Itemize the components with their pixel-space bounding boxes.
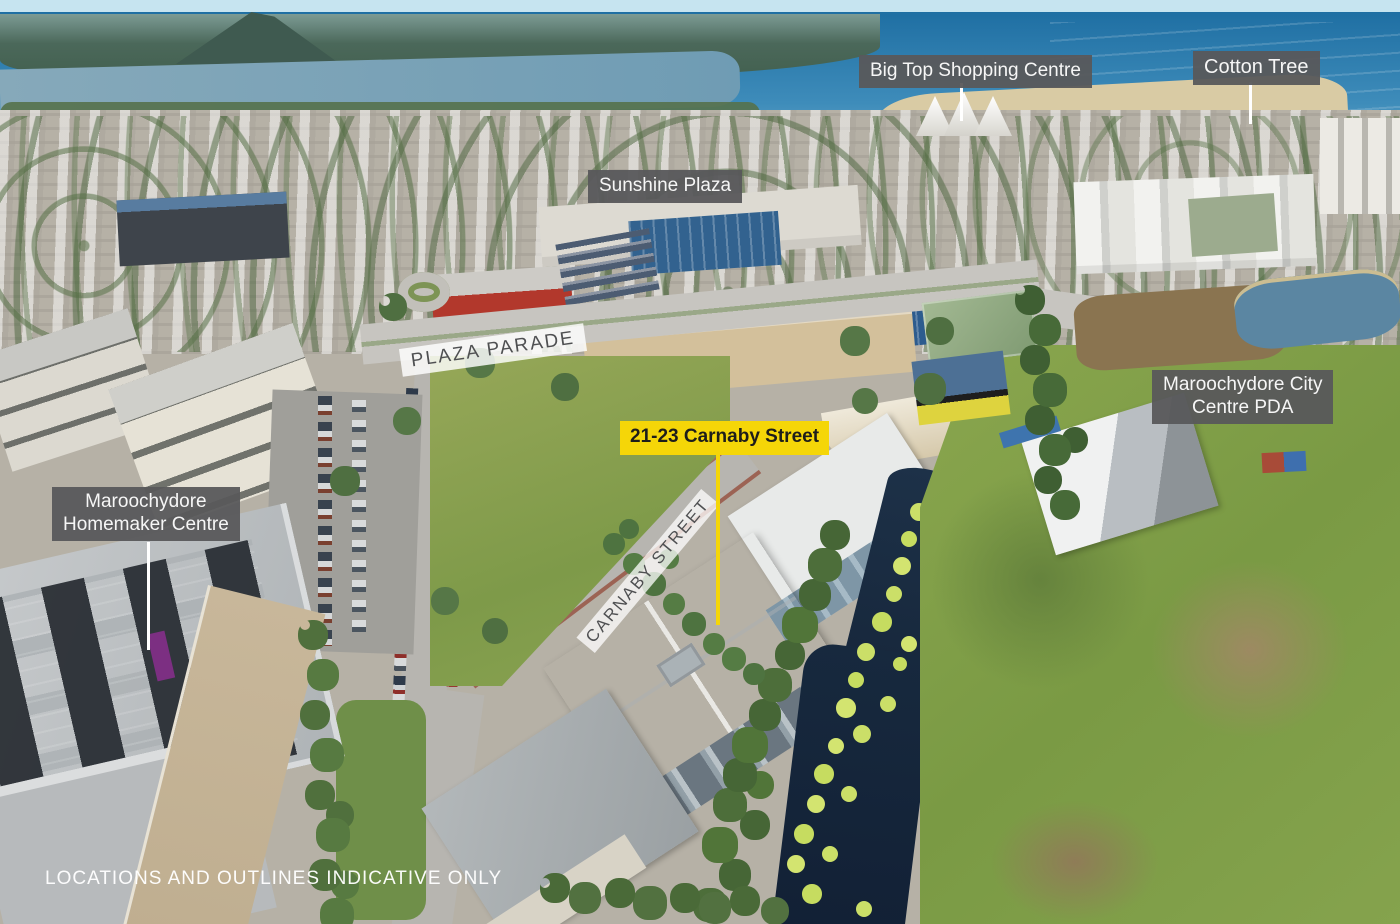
label-line: Maroochydore City [1163,373,1322,396]
leader-line-homemaker [147,542,150,650]
palm-row [600,520,608,528]
label-subject-21-23-carnaby-street: 21-23 Carnaby Street [620,421,829,455]
aerial-photo: Big Top Shopping Centre Cotton Tree Suns… [0,0,1400,924]
label-line: Homemaker Centre [63,513,229,536]
label-line: Centre PDA [1163,396,1322,419]
channel-bank-trees [735,520,745,530]
label-cotton-tree: Cotton Tree [1193,51,1320,85]
parked-cars [318,396,332,646]
leader-line-cotton-tree [1249,82,1252,124]
dirt-patch [990,800,1160,924]
leader-line-subject [716,451,720,625]
label-sunshine-plaza: Sunshine Plaza [588,170,742,203]
parking-structure [116,192,289,267]
roundabout [398,272,450,312]
disclaimer-text: LOCATIONS AND OUTLINES INDICATIVE ONLY [45,868,502,890]
label-maroochydore-homemaker-centre: Maroochydore Homemaker Centre [52,487,240,541]
parked-cars [352,400,366,640]
shipping-container [1262,451,1307,473]
apartment-block [1188,193,1278,257]
creek-trees [1015,285,1025,295]
algae-patches [795,500,803,508]
tree-cluster [540,878,550,888]
street-trees [380,296,390,306]
tree-row [300,620,310,630]
dirt-patch [1150,560,1350,740]
coast-highrise [1320,118,1400,214]
label-big-top-shopping-centre: Big Top Shopping Centre [859,55,1092,88]
label-line: Maroochydore [63,490,229,513]
leader-line-big-top [960,83,963,121]
yellow-building [911,351,1010,426]
label-maroochydore-city-centre-pda: Maroochydore City Centre PDA [1152,370,1333,424]
